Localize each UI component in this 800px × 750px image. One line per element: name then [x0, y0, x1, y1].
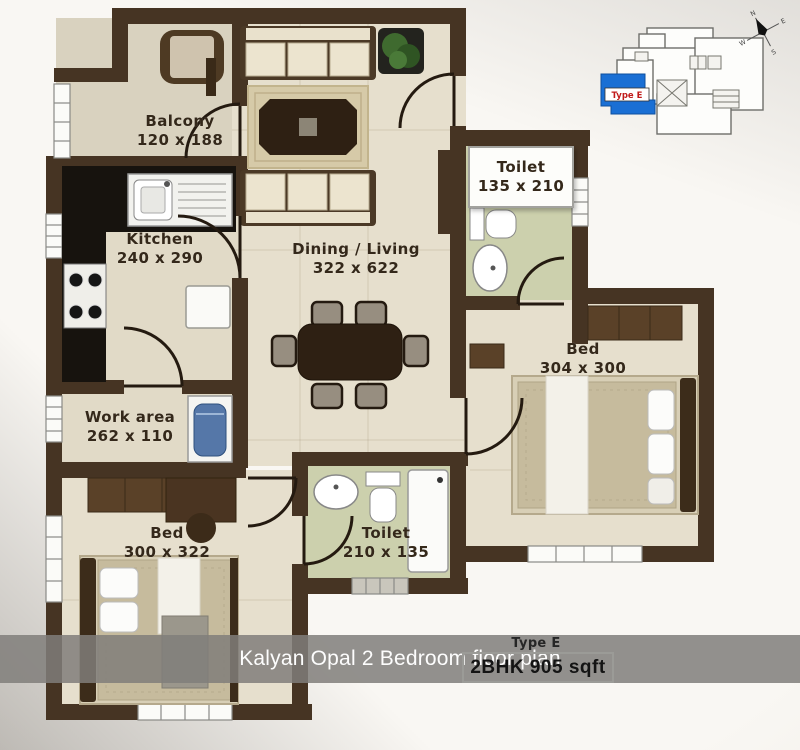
room-name: Toilet	[470, 158, 572, 177]
toilet-commode	[470, 208, 516, 240]
kitchen-window	[46, 214, 62, 258]
toilet-top-window	[572, 178, 588, 226]
room-name: Bed	[124, 524, 210, 543]
dining-chair	[404, 336, 428, 366]
room-label-kitchen: Kitchen 240 x 290	[117, 230, 203, 268]
room-label-bed-right: Bed 304 x 300	[540, 340, 626, 378]
wardrobe	[588, 306, 682, 340]
room-name: Balcony	[137, 112, 223, 131]
keyplan-unit-label: Type E	[612, 91, 643, 101]
room-dims: 300 x 322	[124, 543, 210, 562]
hob	[64, 264, 106, 328]
compass-e: E	[780, 17, 787, 26]
room-label-balcony: Balcony 120 x 188	[137, 112, 223, 150]
kitchen-sink	[128, 174, 232, 226]
room-label-work-area: Work area 262 x 110	[85, 408, 175, 446]
room-name: Kitchen	[117, 230, 203, 249]
nightstand	[470, 344, 504, 368]
bedroom-right-window	[528, 546, 642, 562]
unit-type-label: Type E	[511, 636, 560, 651]
coffee-table	[259, 99, 357, 155]
room-dims: 322 x 622	[292, 259, 420, 278]
keyplan: Type E N E S W	[595, 8, 800, 158]
compass-s: S	[770, 48, 777, 57]
floor-plan-page: Type E N E S W Balcony 120 x 188 Kitchen…	[0, 0, 800, 750]
balcony-railing-window	[54, 84, 70, 158]
toilet-bottom-vent	[352, 578, 408, 594]
room-label-toilet-top: Toilet 135 x 210	[468, 146, 574, 208]
room-dims: 120 x 188	[137, 131, 223, 150]
room-name: Dining / Living	[292, 240, 420, 259]
room-name: Toilet	[343, 524, 429, 543]
dining-chair	[272, 336, 296, 366]
wash-basin	[314, 475, 358, 509]
fridge	[186, 286, 230, 328]
wash-basin	[473, 245, 507, 291]
room-name: Work area	[85, 408, 175, 427]
plant	[378, 28, 424, 74]
bedroom-left-bottom-window	[138, 704, 232, 720]
unit-spec-text: 2BHK 905 sqft	[470, 657, 605, 679]
room-label-dining-living: Dining / Living 322 x 622	[292, 240, 420, 278]
room-name: Bed	[540, 340, 626, 359]
dining-chair	[356, 384, 386, 408]
room-dims: 210 x 135	[343, 543, 429, 562]
room-dims: 240 x 290	[117, 249, 203, 268]
room-dims: 304 x 300	[540, 359, 626, 378]
unit-spec-box: 2BHK 905 sqft	[462, 652, 614, 683]
sofa	[240, 170, 376, 226]
room-dims: 262 x 110	[85, 427, 175, 446]
compass-n: N	[749, 9, 757, 18]
dining-chair	[312, 302, 342, 326]
room-label-toilet-bottom: Toilet 210 x 135	[343, 524, 429, 562]
dining-chair	[312, 384, 342, 408]
caption-bar: Kalyan Opal 2 Bedroom floor plan	[0, 635, 800, 683]
room-dims: 135 x 210	[470, 177, 572, 196]
toilet-commode	[366, 472, 400, 522]
work-area-window	[46, 396, 62, 442]
sofa	[240, 26, 376, 80]
bed-right	[512, 376, 698, 514]
dining-chair	[356, 302, 386, 326]
washing-machine	[188, 396, 232, 462]
dining-table	[298, 324, 402, 380]
bedroom-left-window	[46, 516, 62, 602]
room-label-bed-left: Bed 300 x 322	[124, 524, 210, 562]
